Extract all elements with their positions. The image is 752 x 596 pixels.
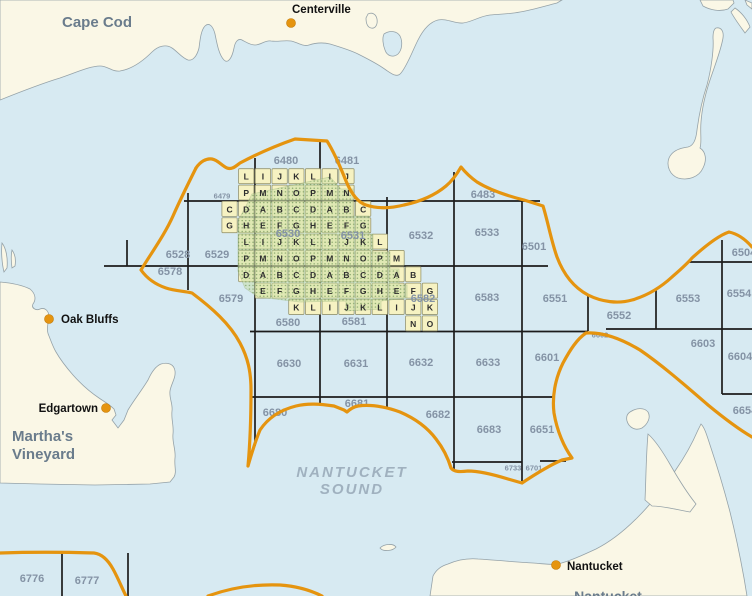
- cell-letter-O: O: [427, 319, 434, 329]
- cell-letter-P: P: [243, 253, 249, 263]
- block-label-6777: 6777: [75, 575, 99, 587]
- cell-letter-B: B: [343, 270, 349, 280]
- cell-letter-F: F: [277, 286, 282, 296]
- map-viewport: LIJKLIJPMNOPMNCDABCDABCGHEFGHEFGLIJKLIJK…: [0, 0, 752, 596]
- landmass-1: [366, 13, 377, 28]
- cell-letter-L: L: [377, 237, 382, 247]
- cell-letter-C: C: [360, 270, 366, 280]
- cell-letter-E: E: [260, 221, 266, 231]
- cell-letter-B: B: [343, 204, 349, 214]
- block-label-6532: 6532: [409, 230, 433, 242]
- block-label-6531: 6531: [341, 230, 365, 242]
- cell-letter-N: N: [277, 253, 283, 263]
- cell-letter-D: D: [377, 270, 383, 280]
- cell-letter-A: A: [327, 270, 333, 280]
- cell-letter-I: I: [329, 172, 331, 182]
- town-label-edgartown: Edgartown: [39, 403, 98, 415]
- block-label-6682: 6682: [426, 409, 450, 421]
- cell-letter-I: I: [262, 237, 264, 247]
- block-label-6551: 6551: [543, 293, 567, 305]
- cell-letter-M: M: [259, 188, 266, 198]
- cell-letter-N: N: [410, 319, 416, 329]
- block-label-6530: 6530: [276, 228, 300, 240]
- cell-letter-C: C: [293, 204, 299, 214]
- cell-letter-P: P: [377, 253, 383, 263]
- cell-letter-D: D: [310, 204, 316, 214]
- block-label-6504: 6504: [732, 247, 752, 259]
- region-label-marthas: Martha's: [12, 428, 73, 445]
- block-label-6733: 6733: [505, 464, 522, 473]
- pond-0: [383, 32, 402, 57]
- cell-letter-I: I: [395, 302, 397, 312]
- block-label-6552: 6552: [607, 310, 631, 322]
- cell-letter-M: M: [393, 253, 400, 263]
- cell-letter-A: A: [260, 204, 266, 214]
- block-label-6654: 6654: [733, 405, 752, 417]
- cell-letter-B: B: [277, 204, 283, 214]
- cell-letter-G: G: [360, 286, 367, 296]
- block-label-6579: 6579: [219, 293, 243, 305]
- town-label-oak-bluffs: Oak Bluffs: [61, 314, 119, 326]
- town-dot-edgartown: [102, 404, 111, 413]
- block-label-6583: 6583: [475, 292, 499, 304]
- cell-letter-P: P: [310, 253, 316, 263]
- cell-letter-L: L: [310, 237, 315, 247]
- block-label-6553: 6553: [676, 293, 700, 305]
- block-label-6480: 6480: [274, 155, 298, 167]
- block-label-6632: 6632: [409, 357, 433, 369]
- block-label-6630: 6630: [277, 358, 301, 370]
- region-label-cape-cod: Cape Cod: [62, 14, 132, 31]
- cell-letter-B: B: [277, 270, 283, 280]
- cell-letter-G: G: [226, 221, 233, 231]
- block-label-6631: 6631: [344, 358, 368, 370]
- cell-letter-A: A: [393, 270, 399, 280]
- cell-letter-A: A: [260, 270, 266, 280]
- cell-letter-H: H: [310, 221, 316, 231]
- region-label-nantucket-island: Nantucket: [574, 588, 642, 596]
- cell-letter-A: A: [327, 204, 333, 214]
- cell-letter-L: L: [244, 172, 249, 182]
- cell-letter-H: H: [377, 286, 383, 296]
- town-label-centerville: Centerville: [292, 4, 351, 16]
- cell-letter-E: E: [327, 286, 333, 296]
- block-label-6501: 6501: [522, 241, 546, 253]
- region-label-vineyard: Vineyard: [12, 446, 75, 463]
- cell-letter-L: L: [310, 172, 315, 182]
- cell-letter-D: D: [310, 270, 316, 280]
- block-label-6601: 6601: [535, 352, 559, 364]
- block-label-6582: 6582: [411, 293, 435, 305]
- cell-letter-D: D: [243, 270, 249, 280]
- block-label-6533: 6533: [475, 227, 499, 239]
- town-dot-nantucket: [552, 561, 561, 570]
- cell-letter-N: N: [343, 253, 349, 263]
- block-label-6580: 6580: [276, 317, 300, 329]
- cell-letter-P: P: [243, 188, 249, 198]
- region-label-nantucket-sound-2: SOUND: [320, 481, 384, 498]
- cell-letter-K: K: [360, 302, 367, 312]
- cell-letter-J: J: [344, 302, 349, 312]
- block-label-6578: 6578: [158, 266, 182, 278]
- block-label-6529: 6529: [205, 249, 229, 261]
- cell-letter-L: L: [244, 237, 249, 247]
- cell-letter-P: P: [310, 188, 316, 198]
- nantucket-sound-map: LIJKLIJPMNOPMNCDABCDABCGHEFGHEFGLIJKLIJK…: [0, 0, 752, 596]
- cell-letter-G: G: [293, 286, 300, 296]
- cell-letter-J: J: [277, 172, 282, 182]
- cell-letter-E: E: [327, 221, 333, 231]
- cell-letter-M: M: [326, 188, 333, 198]
- town-dot-centerville: [287, 19, 296, 28]
- cell-letter-M: M: [259, 253, 266, 263]
- cell-letter-F: F: [344, 286, 349, 296]
- cell-letter-I: I: [329, 237, 331, 247]
- cell-letter-L: L: [377, 302, 382, 312]
- cell-letter-I: I: [329, 302, 331, 312]
- cell-letter-E: E: [260, 286, 266, 296]
- cell-letter-K: K: [293, 302, 300, 312]
- cell-letter-C: C: [226, 204, 232, 214]
- cell-letter-H: H: [243, 221, 249, 231]
- block-label-6604: 6604: [728, 351, 752, 363]
- region-label-nantucket-sound-1: NANTUCKET: [296, 464, 407, 481]
- town-label-nantucket: Nantucket: [567, 561, 623, 573]
- town-dot-oak-bluffs: [45, 315, 54, 324]
- cell-letter-E: E: [394, 286, 400, 296]
- cell-letter-O: O: [293, 253, 300, 263]
- cell-letter-I: I: [262, 172, 264, 182]
- block-label-6554: 6554: [727, 288, 752, 300]
- cell-letter-B: B: [410, 270, 416, 280]
- cell-letter-N: N: [277, 188, 283, 198]
- block-label-6651: 6651: [530, 424, 554, 436]
- cell-letter-L: L: [310, 302, 315, 312]
- block-label-6528: 6528: [166, 249, 190, 261]
- block-label-6603: 6603: [691, 338, 715, 350]
- cell-letter-D: D: [243, 204, 249, 214]
- block-label-6776: 6776: [20, 573, 44, 585]
- cell-letter-C: C: [293, 270, 299, 280]
- block-label-6683: 6683: [477, 424, 501, 436]
- cell-letter-H: H: [310, 286, 316, 296]
- cell-letter-O: O: [360, 253, 367, 263]
- cell-letter-K: K: [293, 172, 300, 182]
- block-label-6581: 6581: [342, 316, 366, 328]
- block-label-6633: 6633: [476, 357, 500, 369]
- cell-letter-M: M: [326, 253, 333, 263]
- cell-letter-O: O: [293, 188, 300, 198]
- block-label-6479: 6479: [214, 192, 231, 201]
